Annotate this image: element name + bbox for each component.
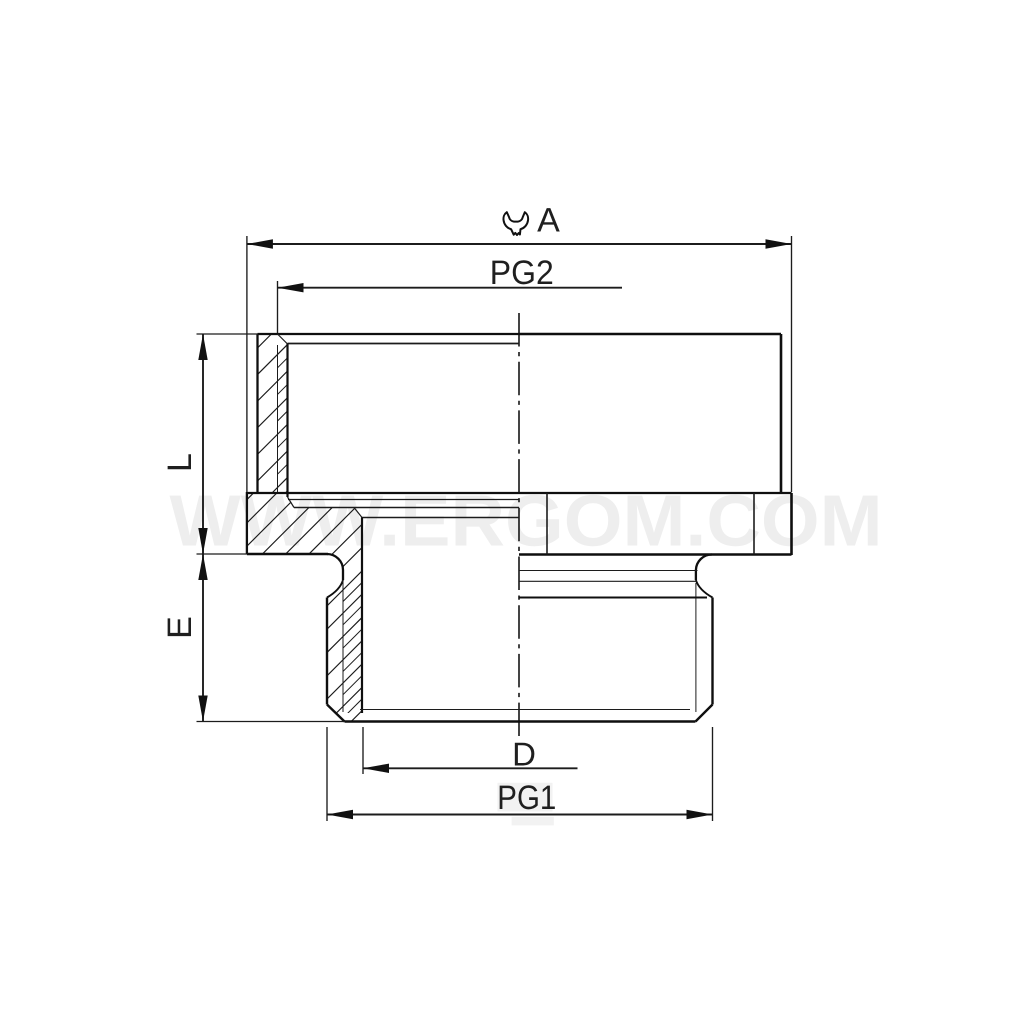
- svg-text:L: L: [161, 453, 199, 472]
- svg-text:PG1: PG1: [497, 779, 556, 817]
- svg-text:PG2: PG2: [490, 254, 554, 292]
- svg-text:E: E: [161, 616, 199, 639]
- svg-text:A: A: [537, 202, 560, 240]
- svg-text:D: D: [512, 735, 536, 772]
